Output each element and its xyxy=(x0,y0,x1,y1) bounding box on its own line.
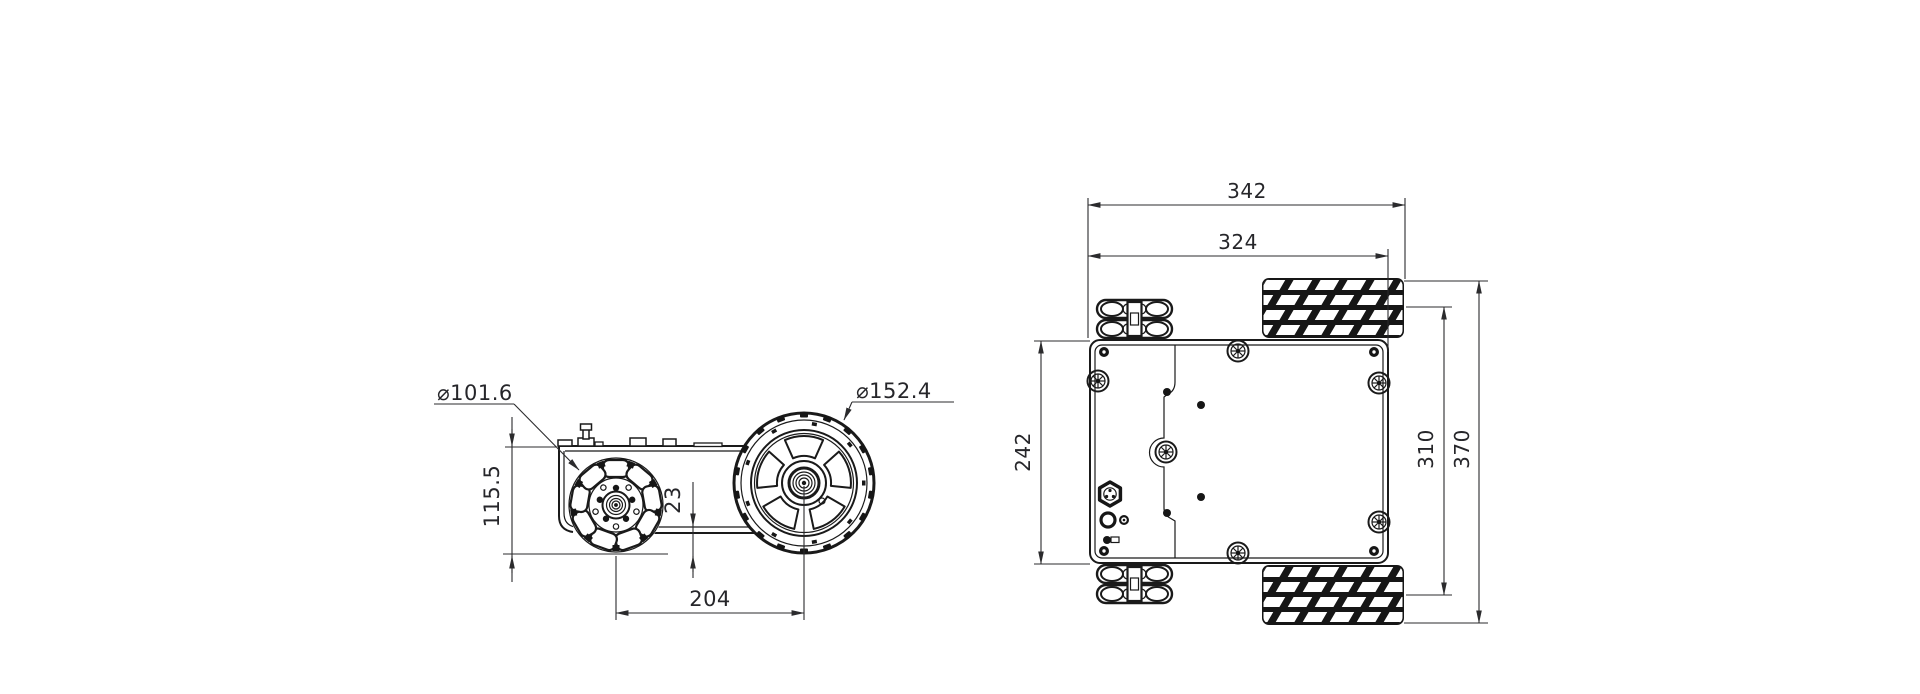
drive-wheel-top-rear xyxy=(1247,565,1422,625)
dim-ground-clearance-label: 23 xyxy=(661,486,685,514)
technical-drawing-canvas: 115.5 23 204 ⌀101.6 ⌀152.4 xyxy=(0,0,1920,694)
power-connector-hex xyxy=(1100,482,1121,506)
dim-wheelbase-label: 204 xyxy=(689,587,731,611)
dim-inner-length-label: 324 xyxy=(1218,230,1258,254)
dim-chassis-width-label: 242 xyxy=(1011,432,1035,472)
dim-overall-width-label: 370 xyxy=(1450,429,1474,469)
omni-wheel-top-rear xyxy=(1097,565,1172,603)
drawing-background xyxy=(0,0,1920,694)
dim-omni-wheel-diameter-label: ⌀101.6 xyxy=(437,381,513,405)
dim-track-width-label: 310 xyxy=(1414,429,1438,469)
dim-overall-length-label: 342 xyxy=(1227,179,1267,203)
omni-wheel-top-front xyxy=(1097,300,1172,338)
dim-overall-height-label: 115.5 xyxy=(480,465,504,528)
dim-drive-wheel-diameter-label: ⌀152.4 xyxy=(856,379,932,403)
omni-wheel-side xyxy=(568,457,664,553)
drive-wheel-top-front xyxy=(1247,278,1422,338)
indicator-led xyxy=(1119,515,1129,525)
